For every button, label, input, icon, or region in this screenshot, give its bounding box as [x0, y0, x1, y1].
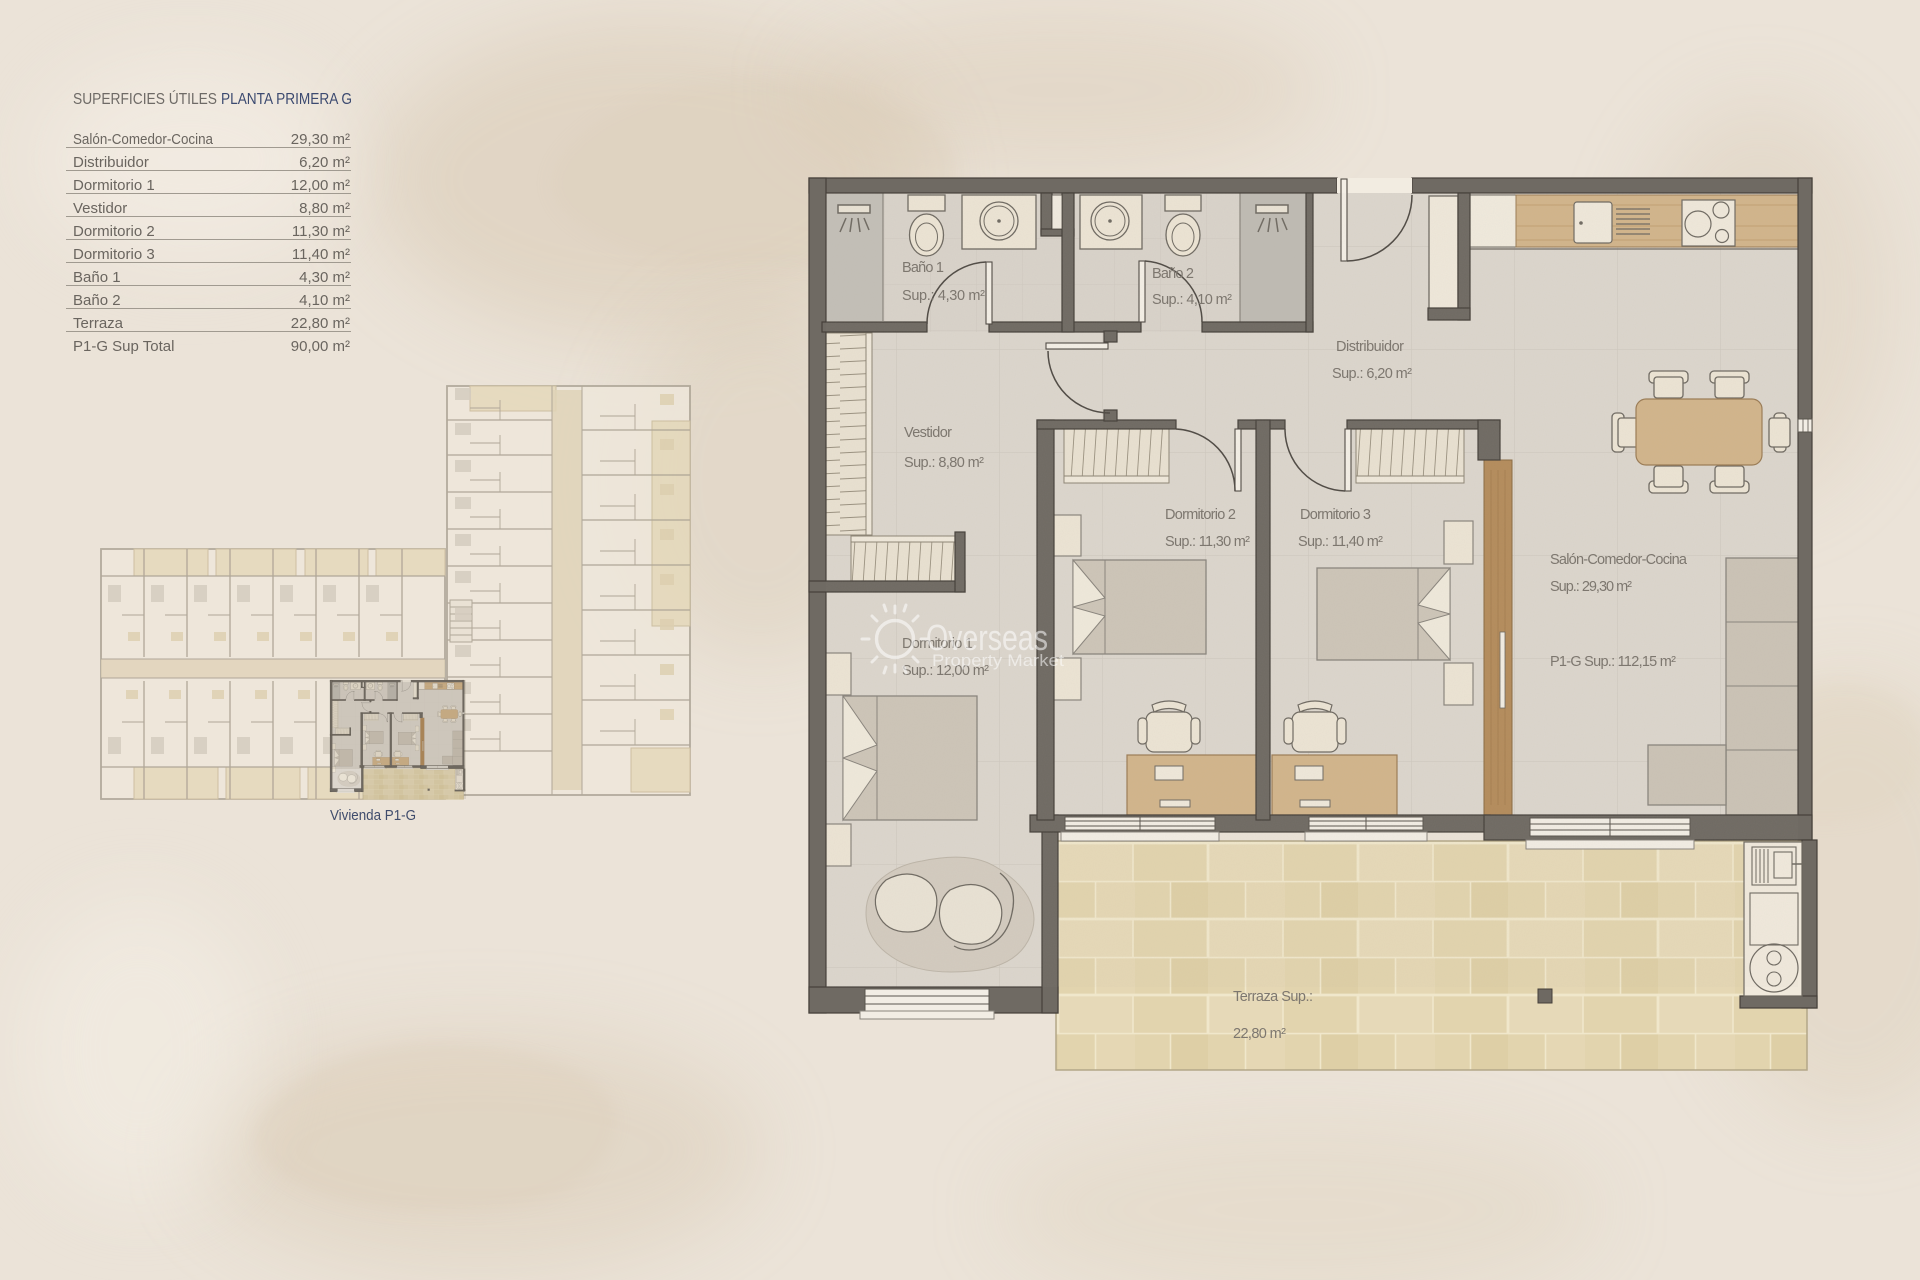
svg-text:Property Market: Property Market: [932, 651, 1064, 670]
svg-text:Dormitorio 2: Dormitorio 2: [1165, 507, 1236, 523]
svg-text:Baño 1: Baño 1: [902, 260, 944, 276]
svg-text:90,00 m²: 90,00 m²: [291, 338, 350, 355]
svg-text:11,30 m²: 11,30 m²: [292, 223, 350, 240]
svg-text:Distribuidor: Distribuidor: [73, 154, 149, 171]
svg-text:Baño 1: Baño 1: [73, 269, 121, 286]
svg-text:6,20 m²: 6,20 m²: [299, 154, 350, 171]
svg-text:8,80 m²: 8,80 m²: [299, 200, 350, 217]
svg-text:Salón-Comedor-Cocina: Salón-Comedor-Cocina: [73, 131, 214, 148]
svg-text:Vestidor: Vestidor: [73, 200, 127, 217]
svg-text:Sup.: 4,10 m²: Sup.: 4,10 m²: [1152, 292, 1232, 308]
svg-text:SUPERFICIES ÚTILES: SUPERFICIES ÚTILES: [73, 89, 217, 108]
svg-text:PLANTA PRIMERA G: PLANTA PRIMERA G: [221, 91, 352, 108]
svg-text:Terraza Sup.:: Terraza Sup.:: [1233, 989, 1313, 1005]
svg-text:Sup.: 11,40 m²: Sup.: 11,40 m²: [1298, 534, 1383, 550]
svg-text:29,30 m²: 29,30 m²: [291, 131, 350, 148]
svg-text:Vestidor: Vestidor: [904, 425, 952, 441]
svg-text:Dormitorio 3: Dormitorio 3: [73, 246, 155, 263]
svg-text:12,00 m²: 12,00 m²: [291, 177, 350, 194]
svg-text:Dormitorio 2: Dormitorio 2: [73, 223, 155, 240]
svg-text:Sup.: 11,30 m²: Sup.: 11,30 m²: [1165, 534, 1250, 550]
svg-text:Baño 2: Baño 2: [1152, 266, 1194, 282]
svg-text:Sup.: 4,30 m²: Sup.: 4,30 m²: [902, 288, 985, 304]
svg-text:Salón-Comedor-Cocina: Salón-Comedor-Cocina: [1550, 552, 1688, 568]
svg-text:Sup.: 29,30 m²: Sup.: 29,30 m²: [1550, 579, 1632, 595]
svg-text:Distribuidor: Distribuidor: [1336, 339, 1404, 355]
svg-text:4,10 m²: 4,10 m²: [299, 292, 350, 309]
svg-text:Sup.: 6,20 m²: Sup.: 6,20 m²: [1332, 366, 1412, 382]
svg-text:Sup.: 8,80 m²: Sup.: 8,80 m²: [904, 455, 984, 471]
svg-text:Baño 2: Baño 2: [73, 292, 121, 309]
svg-text:Vivienda P1-G: Vivienda P1-G: [330, 807, 416, 824]
svg-text:P1-G Sup Total: P1-G Sup Total: [73, 338, 174, 355]
svg-text:22,80 m²: 22,80 m²: [1233, 1026, 1286, 1042]
svg-text:Dormitorio 1: Dormitorio 1: [73, 177, 155, 194]
svg-text:4,30 m²: 4,30 m²: [299, 269, 350, 286]
svg-text:P1-G Sup.: 112,15 m²: P1-G Sup.: 112,15 m²: [1550, 654, 1676, 670]
svg-text:11,40 m²: 11,40 m²: [292, 246, 350, 263]
svg-text:Terraza: Terraza: [73, 315, 124, 332]
svg-text:Dormitorio 3: Dormitorio 3: [1300, 507, 1371, 523]
svg-text:22,80 m²: 22,80 m²: [291, 315, 350, 332]
